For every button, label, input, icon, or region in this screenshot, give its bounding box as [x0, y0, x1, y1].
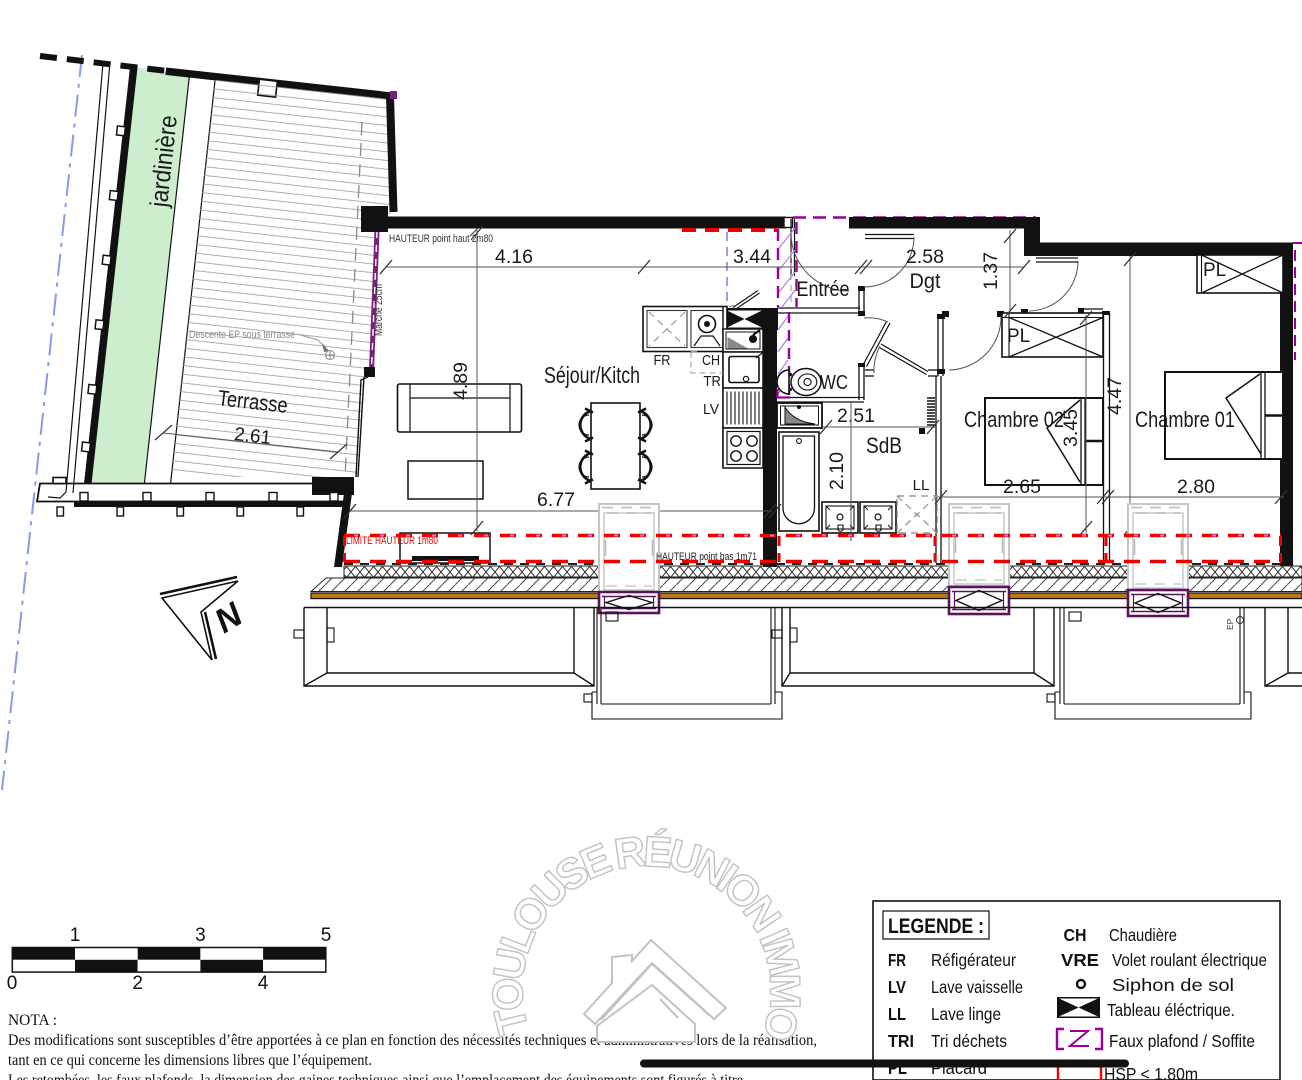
svg-text:2.58: 2.58 [906, 246, 944, 268]
svg-text:3: 3 [195, 925, 206, 946]
svg-text:PL: PL [1203, 260, 1226, 281]
svg-text:Chambre 02: Chambre 02 [964, 407, 1064, 432]
svg-text:Dgt: Dgt [910, 270, 941, 293]
svg-text:VRE: VRE [1061, 950, 1099, 970]
svg-text:HAUTEUR point haut 2m80: HAUTEUR point haut 2m80 [389, 233, 493, 245]
svg-text:5: 5 [321, 925, 332, 946]
svg-text:2.10: 2.10 [826, 452, 848, 490]
svg-text:Descente EP sous terrasse: Descente EP sous terrasse [189, 329, 295, 341]
svg-text:TRI: TRI [888, 1031, 914, 1051]
svg-text:4.47: 4.47 [1104, 377, 1126, 415]
svg-text:LV: LV [703, 401, 719, 418]
svg-text:LIMITE HAUTEUR 1m80: LIMITE HAUTEUR 1m80 [346, 535, 438, 547]
svg-text:Entrée: Entrée [797, 278, 850, 301]
svg-text:CH: CH [702, 352, 720, 369]
svg-text:2.51: 2.51 [837, 405, 875, 427]
svg-text:1: 1 [70, 925, 81, 946]
svg-text:Chambre 01: Chambre 01 [1135, 407, 1235, 432]
svg-text:4.89: 4.89 [450, 362, 472, 400]
svg-text:2.65: 2.65 [1003, 476, 1041, 498]
svg-text:CH: CH [1064, 925, 1087, 945]
svg-text:PL: PL [1007, 326, 1030, 347]
svg-text:Tableau éléctrique.: Tableau éléctrique. [1107, 1000, 1235, 1020]
svg-text:Réfigérateur: Réfigérateur [931, 950, 1016, 970]
svg-text:LV: LV [888, 977, 906, 997]
svg-text:Marche 25cm: Marche 25cm [373, 284, 385, 336]
svg-text:FR: FR [888, 950, 906, 970]
svg-text:2: 2 [132, 973, 143, 994]
svg-text:Lave vaisselle: Lave vaisselle [931, 977, 1023, 997]
svg-text:Volet roulant électrique: Volet roulant électrique [1112, 950, 1267, 970]
svg-text:WC: WC [820, 372, 848, 394]
svg-text:2.61: 2.61 [233, 424, 272, 449]
svg-text:Siphon de sol: Siphon de sol [1112, 975, 1234, 995]
svg-text:2.80: 2.80 [1177, 476, 1215, 498]
svg-text:EP: EP [1225, 618, 1235, 630]
svg-text:LEGENDE :: LEGENDE : [888, 915, 984, 938]
svg-text:LL: LL [888, 1004, 906, 1024]
svg-text:4.16: 4.16 [495, 246, 533, 268]
svg-text:Chaudière: Chaudière [1109, 925, 1177, 945]
svg-text:Tri déchets: Tri déchets [931, 1031, 1007, 1051]
svg-text:NOTA :: NOTA : [8, 1012, 57, 1029]
svg-text:FR: FR [654, 352, 671, 369]
svg-text:6.77: 6.77 [537, 489, 575, 511]
svg-text:3.44: 3.44 [733, 246, 771, 268]
svg-text:Séjour/Kitch: Séjour/Kitch [544, 362, 640, 388]
svg-text:tant en ce qui concerne les di: tant en ce qui concerne les dimensions l… [8, 1052, 372, 1069]
svg-text:0: 0 [7, 973, 18, 994]
svg-text:LL: LL [913, 477, 930, 494]
svg-text:HAUTEUR point bas 1m71: HAUTEUR point bas 1m71 [656, 551, 757, 563]
svg-text:Faux plafond / Soffite: Faux plafond / Soffite [1109, 1031, 1255, 1051]
svg-text:SdB: SdB [866, 433, 902, 458]
svg-text:Les retombées, les faux plafon: Les retombées, les faux plafonds, la dim… [8, 1072, 743, 1080]
svg-text:TRI: TRI [704, 373, 725, 390]
svg-text:4: 4 [258, 973, 269, 994]
svg-text:Lave linge: Lave linge [931, 1004, 1001, 1024]
svg-text:1.37: 1.37 [980, 252, 1002, 290]
